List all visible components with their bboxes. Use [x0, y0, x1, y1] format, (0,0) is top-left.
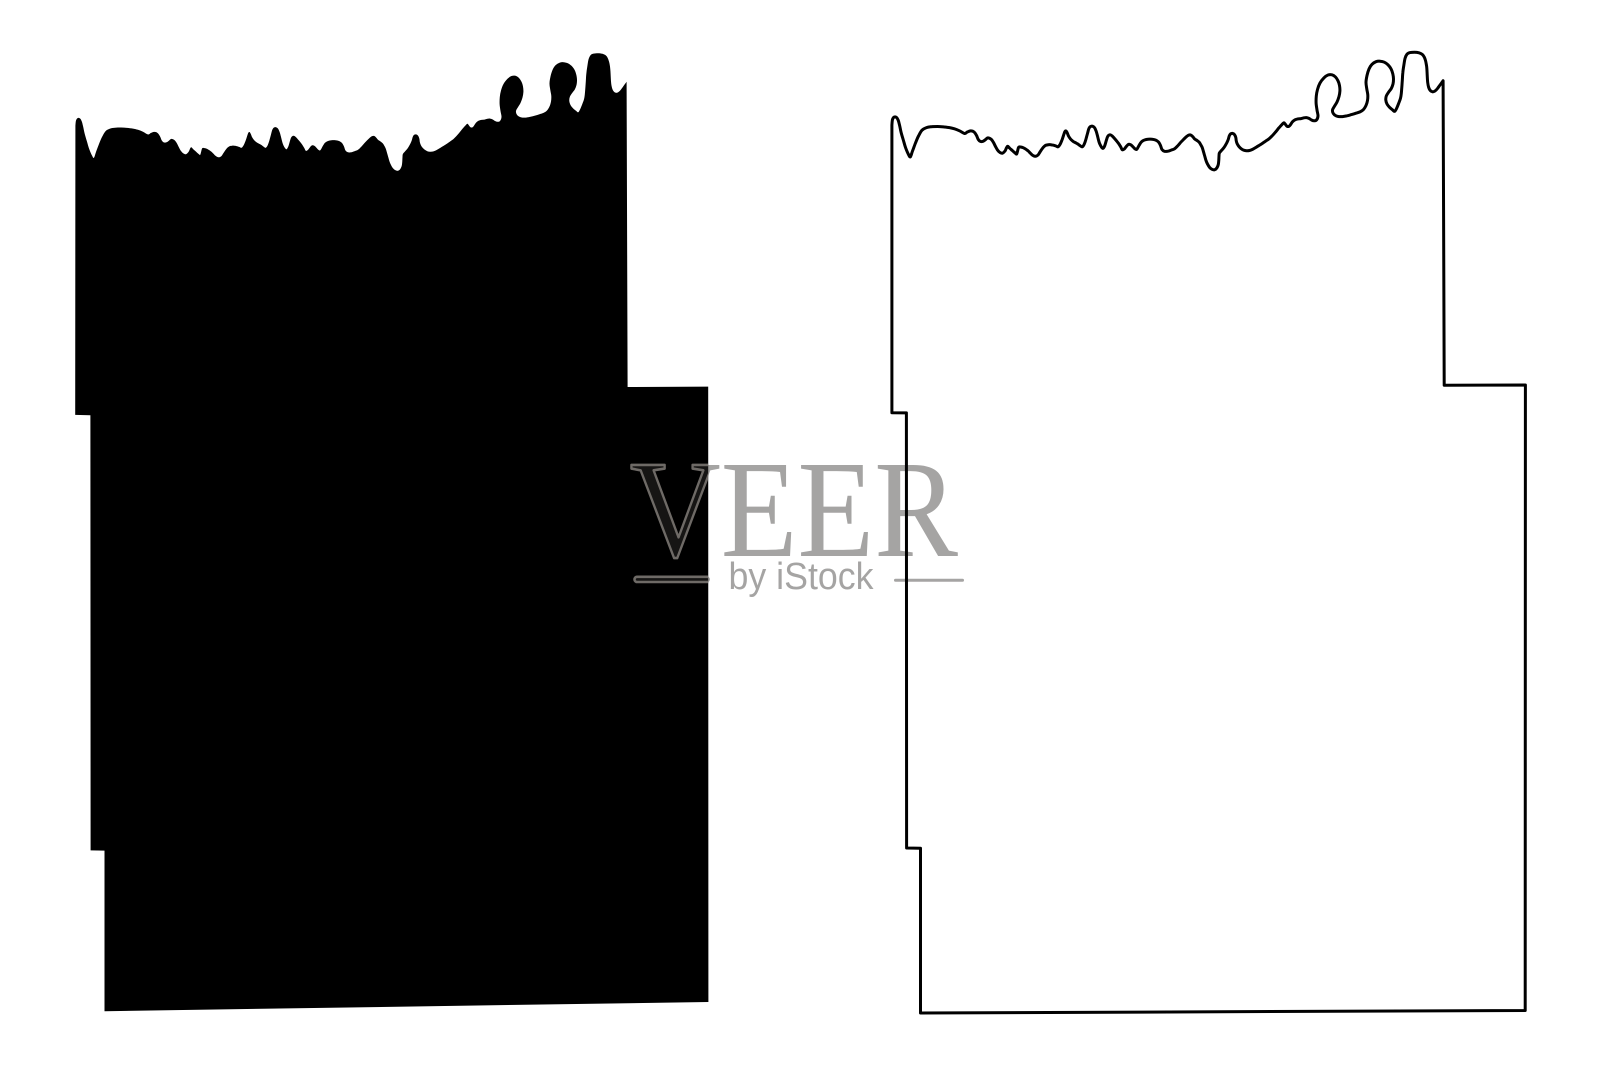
svg-text:VEER: VEER — [630, 433, 958, 587]
